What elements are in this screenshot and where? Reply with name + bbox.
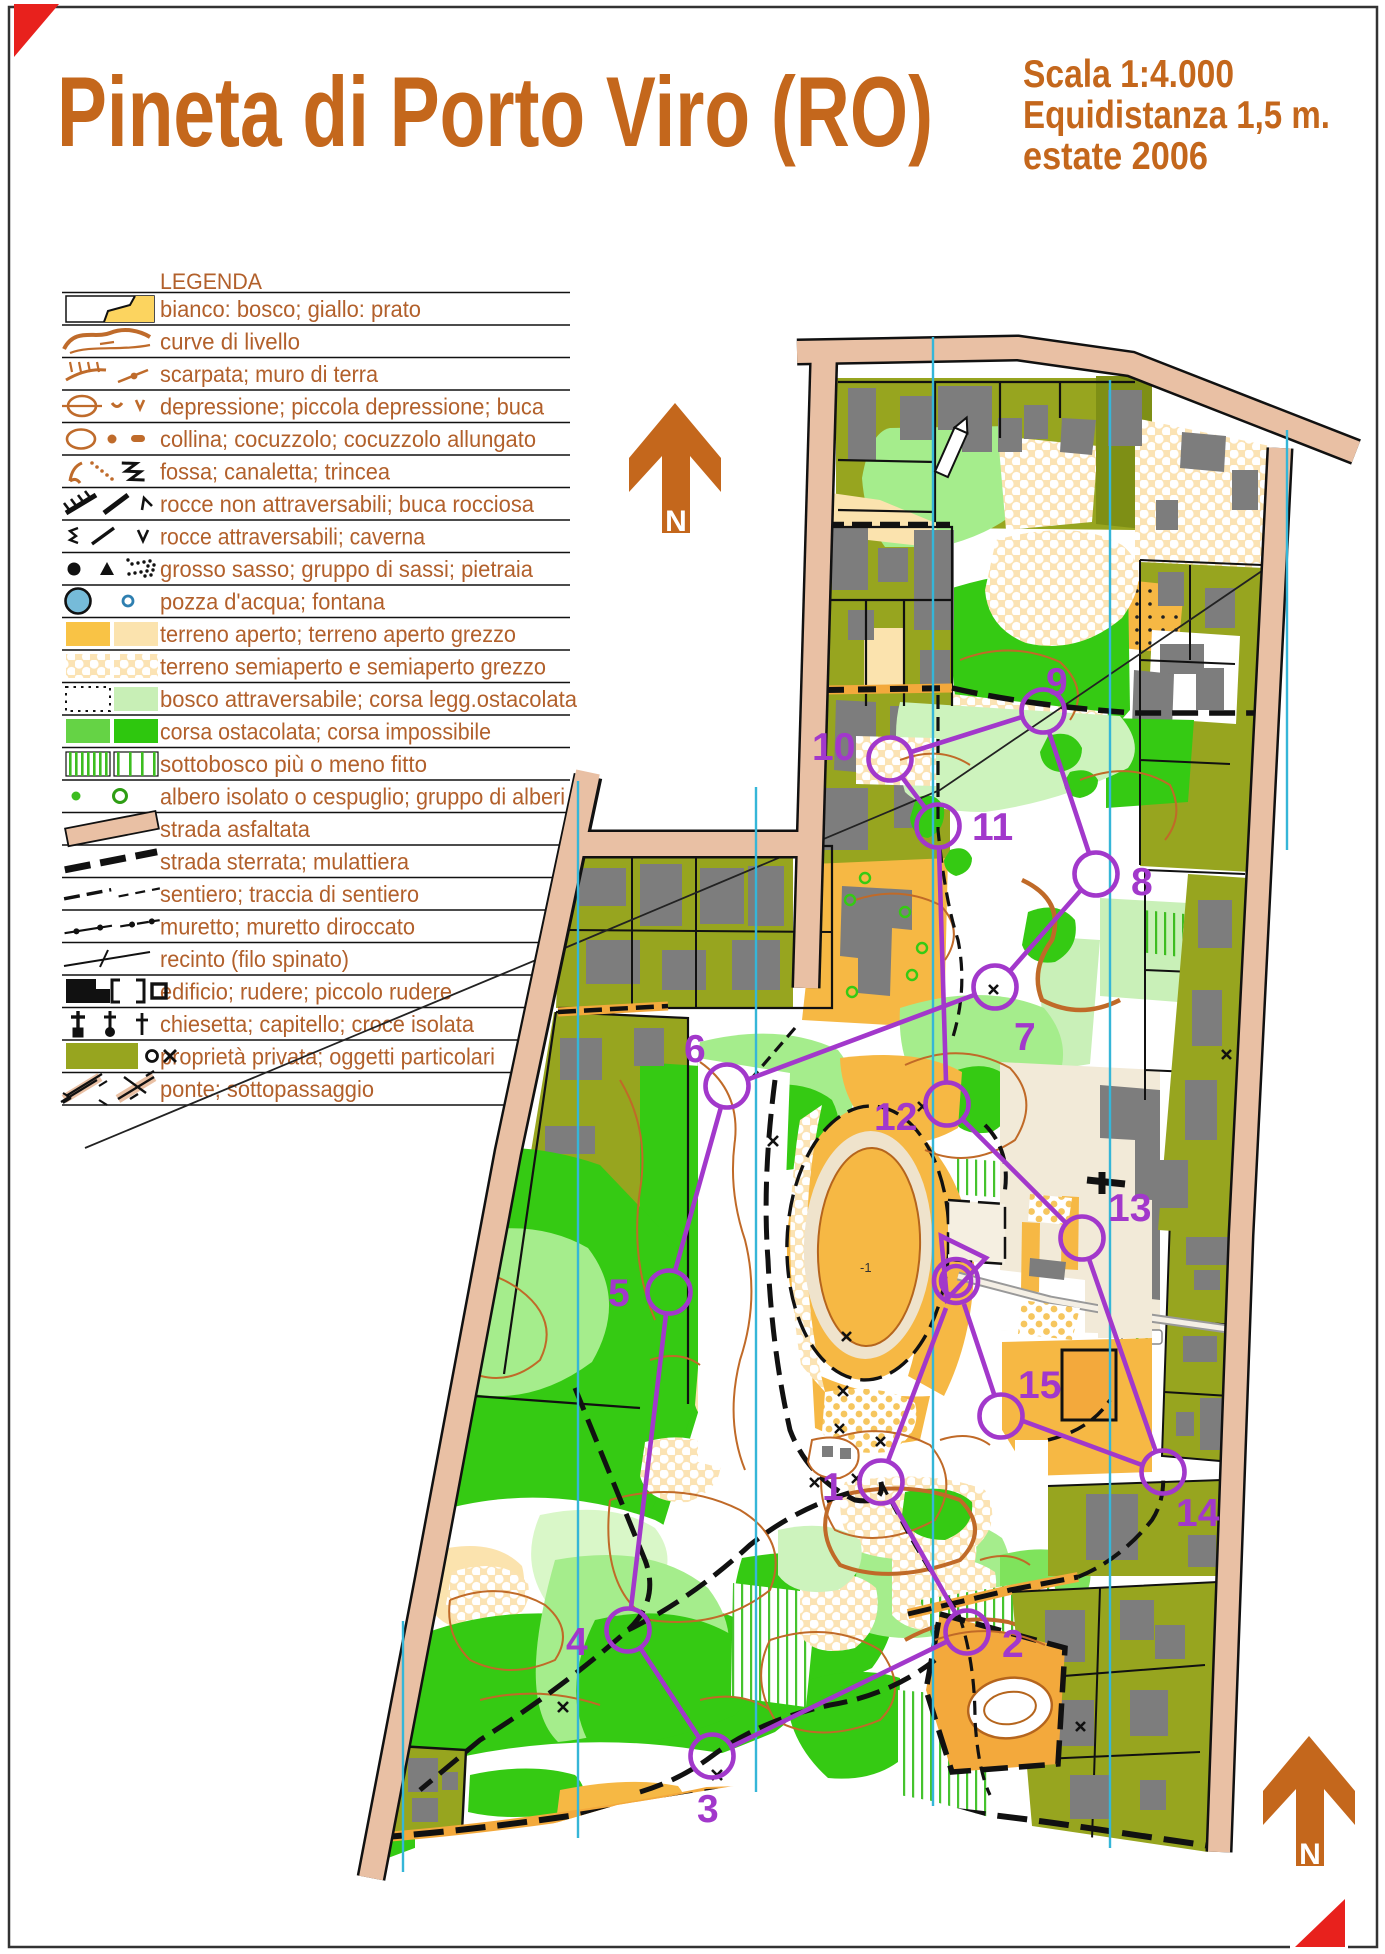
svg-text:sottobosco più o meno fitto: sottobosco più o meno fitto bbox=[160, 751, 427, 777]
svg-text:4: 4 bbox=[566, 1621, 588, 1664]
svg-text:chiesetta; capitello; croce is: chiesetta; capitello; croce isolata bbox=[160, 1011, 474, 1037]
svg-text:12: 12 bbox=[874, 1096, 917, 1139]
svg-text:terreno semiaperto e semiapert: terreno semiaperto e semiaperto grezzo bbox=[160, 654, 546, 680]
svg-text:recinto (filo spinato): recinto (filo spinato) bbox=[160, 946, 349, 972]
svg-text:strada asfaltata: strada asfaltata bbox=[160, 816, 310, 842]
svg-text:scarpata; muro di terra: scarpata; muro di terra bbox=[160, 361, 378, 387]
svg-text:edificio; rudere; piccolo rude: edificio; rudere; piccolo rudere bbox=[160, 979, 452, 1005]
svg-text:14: 14 bbox=[1176, 1492, 1220, 1535]
svg-text:strada sterrata; mulattiera: strada sterrata; mulattiera bbox=[160, 849, 409, 875]
svg-text:terreno aperto; terreno aperto: terreno aperto; terreno aperto grezzo bbox=[160, 621, 516, 647]
svg-text:sentiero; traccia di sentiero: sentiero; traccia di sentiero bbox=[160, 881, 419, 907]
svg-text:ponte; sottopassaggio: ponte; sottopassaggio bbox=[160, 1076, 374, 1102]
svg-text:bosco attraversabile; corsa le: bosco attraversabile; corsa legg.ostacol… bbox=[160, 686, 577, 712]
svg-text:3: 3 bbox=[697, 1788, 719, 1831]
svg-text:6: 6 bbox=[684, 1028, 706, 1071]
svg-text:10: 10 bbox=[812, 726, 855, 769]
svg-text:Equidistanza 1,5 m.: Equidistanza 1,5 m. bbox=[1023, 94, 1330, 137]
svg-text:fossa; canaletta; trincea: fossa; canaletta; trincea bbox=[160, 459, 390, 485]
svg-text:N: N bbox=[1299, 1838, 1321, 1871]
svg-text:grosso sasso; gruppo di sassi;: grosso sasso; gruppo di sassi; pietraia bbox=[160, 556, 533, 582]
svg-text:8: 8 bbox=[1131, 861, 1153, 904]
svg-text:7: 7 bbox=[1014, 1016, 1036, 1059]
svg-text:albero isolato o cespuglio; gr: albero isolato o cespuglio; gruppo di al… bbox=[160, 784, 565, 810]
svg-text:2: 2 bbox=[1002, 1623, 1024, 1666]
svg-text:15: 15 bbox=[1018, 1364, 1061, 1407]
svg-text:rocce non attraversabili; buca: rocce non attraversabili; buca rocciosa bbox=[160, 491, 534, 517]
svg-text:muretto; muretto diroccato: muretto; muretto diroccato bbox=[160, 914, 415, 940]
svg-text:collina; cocuzzolo; cocuzzolo: collina; cocuzzolo; cocuzzolo allungato bbox=[160, 426, 536, 452]
svg-text:estate 2006: estate 2006 bbox=[1023, 135, 1208, 178]
svg-text:5: 5 bbox=[608, 1272, 630, 1315]
svg-text:1: 1 bbox=[822, 1466, 844, 1509]
svg-text:LEGENDA: LEGENDA bbox=[160, 269, 262, 294]
svg-text:bianco: bosco; giallo: prato: bianco: bosco; giallo: prato bbox=[160, 296, 421, 322]
svg-text:11: 11 bbox=[972, 806, 1013, 849]
svg-text:rocce attraversabili; caverna: rocce attraversabili; caverna bbox=[160, 524, 425, 550]
svg-text:9: 9 bbox=[1046, 661, 1068, 704]
svg-text:-1: -1 bbox=[860, 1260, 872, 1275]
svg-text:N: N bbox=[665, 505, 687, 538]
svg-text:curve di livello: curve di livello bbox=[160, 329, 300, 355]
svg-text:corsa ostacolata; corsa imposs: corsa ostacolata; corsa impossibile bbox=[160, 719, 491, 745]
svg-text:13: 13 bbox=[1108, 1187, 1151, 1230]
svg-text:depressione; piccola depressio: depressione; piccola depressione; buca bbox=[160, 394, 544, 420]
svg-text:pozza d'acqua; fontana: pozza d'acqua; fontana bbox=[160, 589, 385, 615]
svg-text:Scala 1:4.000: Scala 1:4.000 bbox=[1023, 53, 1234, 96]
svg-text:Pineta di Porto Viro (RO): Pineta di Porto Viro (RO) bbox=[57, 56, 933, 167]
